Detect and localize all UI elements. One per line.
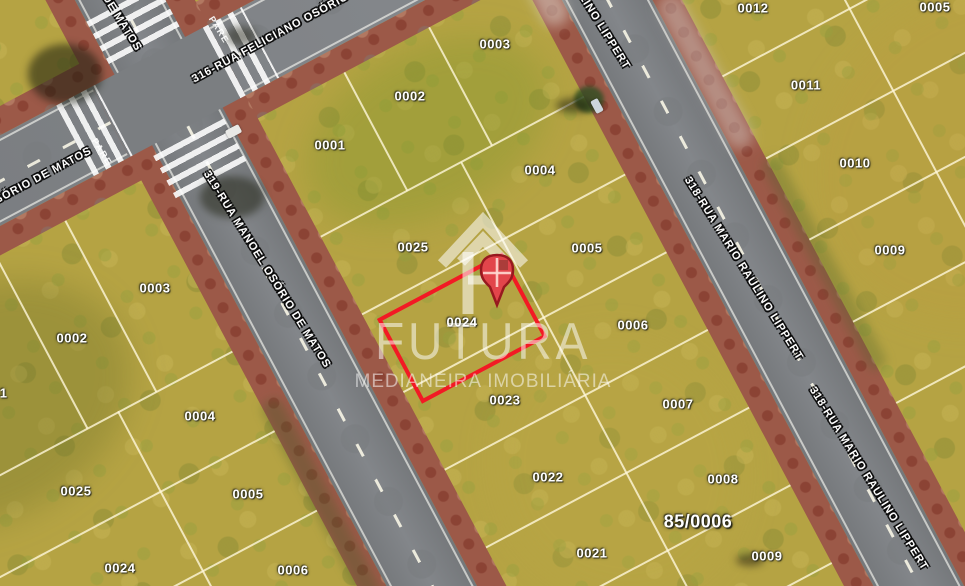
red-house-pin-icon[interactable]	[477, 253, 517, 309]
parcel-boundary-line	[0, 510, 317, 586]
watermark-tagline: MEDIANEIRA IMOBILIÁRIA	[338, 370, 629, 393]
watermark-brand: FUTURA	[345, 316, 621, 368]
map-viewport[interactable]: 0003000200010004002500050024000600230007…	[0, 0, 965, 586]
grass-patch	[0, 230, 175, 579]
